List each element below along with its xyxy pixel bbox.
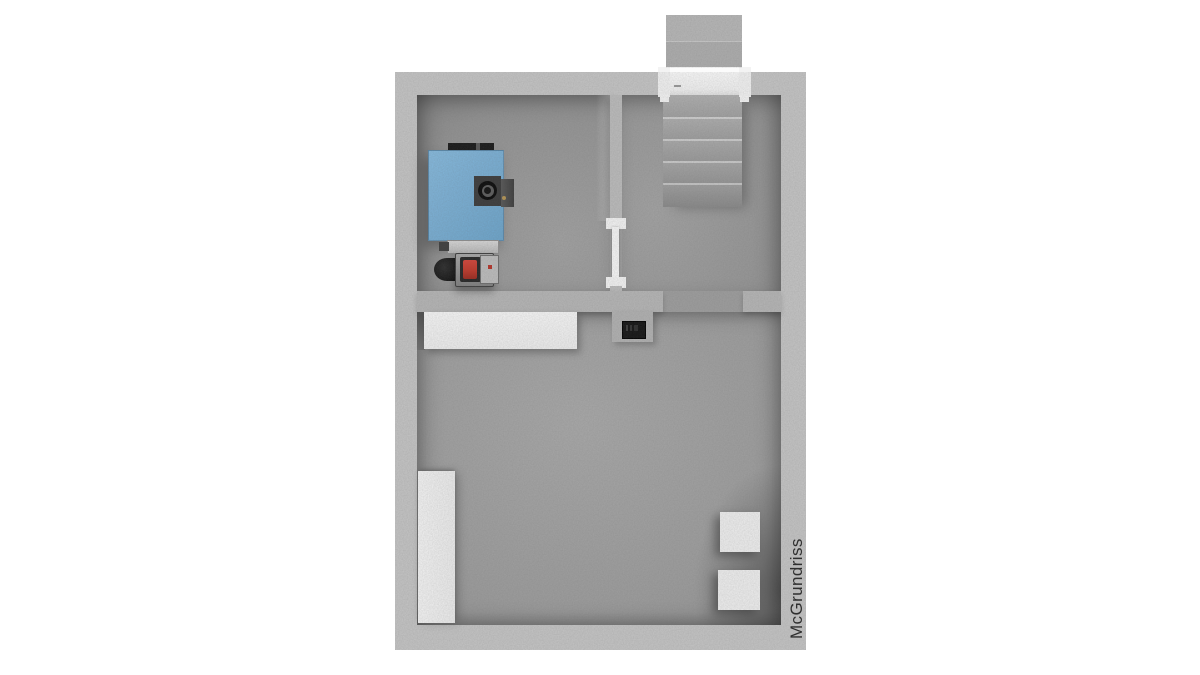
boiler-side-panel (501, 179, 514, 207)
interior-wall-vertical (610, 95, 622, 218)
stair-tread (663, 183, 742, 207)
floorplan-canvas: McGrundriss (0, 0, 1200, 675)
entry-door-jamb (739, 67, 751, 97)
brass-fitting (502, 196, 506, 200)
flue-pipe-opening (484, 187, 491, 194)
staircase (663, 95, 742, 205)
storage-box (720, 512, 760, 552)
boiler-flue (474, 176, 501, 206)
burner-window (463, 260, 477, 279)
counter (424, 312, 577, 349)
burner-indicator (488, 265, 492, 269)
interior-door (612, 227, 619, 281)
entry-door-jamb (658, 67, 670, 97)
flue-pipe-ring (478, 181, 497, 200)
interior-wall-horizontal (417, 291, 663, 312)
burner-window-frame (460, 257, 481, 282)
electrical-panel (622, 321, 646, 339)
stair-tread (663, 117, 742, 141)
entry-door-frame-tab (660, 94, 669, 102)
stair-tread (663, 161, 742, 185)
burner-control-box (480, 255, 499, 284)
electrical-panel-detail (626, 325, 638, 331)
door-handle (674, 85, 681, 87)
entry-door (670, 67, 739, 95)
tall-cabinet (418, 471, 455, 623)
stair-tread (663, 95, 742, 117)
exterior-step (666, 15, 742, 42)
storage-box (718, 570, 760, 610)
interior-wall-horizontal (743, 291, 781, 312)
wall-pier (612, 312, 653, 342)
stair-tread (663, 139, 742, 163)
exterior-entry-steps (666, 15, 742, 68)
burner-bracket-stub (439, 242, 449, 251)
watermark-text: McGrundriss (784, 536, 810, 642)
burner-bracket (447, 240, 499, 254)
exterior-step (666, 42, 742, 70)
flue-pipe-ring (482, 185, 494, 197)
entry-door-frame-tab (740, 94, 749, 102)
